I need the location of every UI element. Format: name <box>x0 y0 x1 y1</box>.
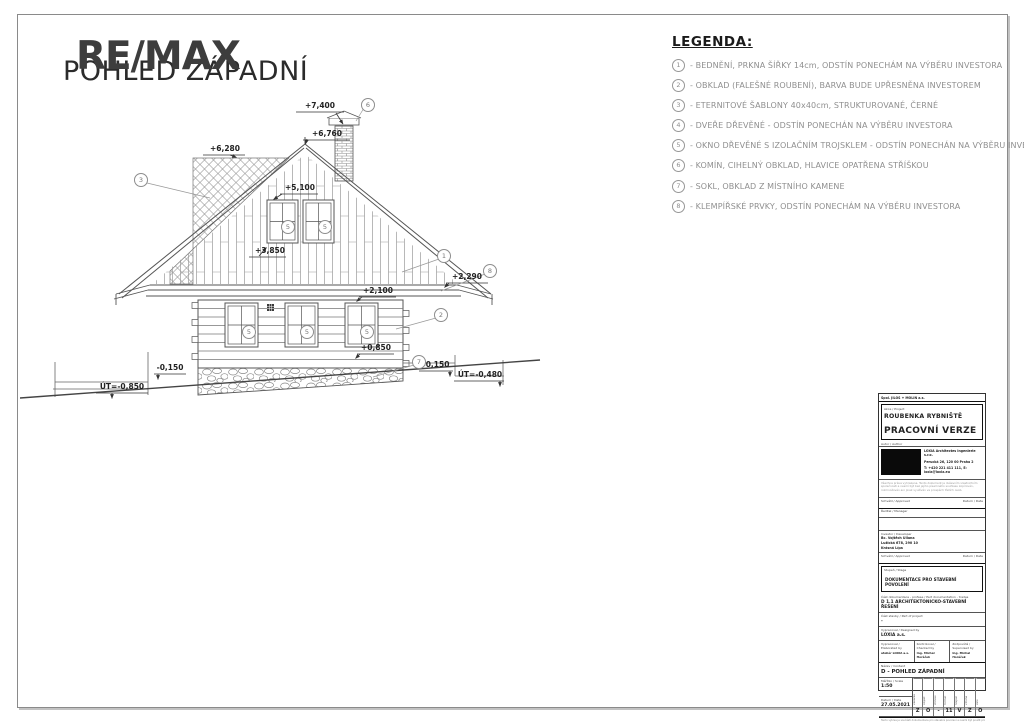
dim-label: +7,400 <box>296 101 344 110</box>
legend-item-text: - BEDNĚNÍ, PRKNA ŠÍŘKY 14cm, ODSTÍN PONE… <box>690 61 1002 70</box>
legend-item-text: - OKNO DŘEVĚNÉ S IZOLAČNÍM TROJSKLEM - O… <box>690 141 1024 150</box>
code-cell: Z <box>913 706 922 716</box>
dim-label: +2,100 <box>358 286 398 295</box>
stage-value: DOKUMENTACE PRO STAVEBNÍ POVOLENÍ <box>882 572 982 587</box>
chimney <box>327 111 361 181</box>
checked-value: Ing. Michal Horáček <box>915 650 950 660</box>
code-cell: V <box>955 706 964 716</box>
spacer <box>879 518 985 531</box>
titleblock-company: Spol. JILOS + MOLIN a.s. <box>879 394 985 402</box>
legend-item-text: - KLEMPÍŘSKÉ PRVKY, ODSTÍN PONECHÁM NA V… <box>690 202 960 211</box>
wall-vent <box>267 304 274 311</box>
marker-7: 7 <box>412 355 426 369</box>
investor-block: Investor / Developer Bc. Vojtěch Uliana … <box>879 531 985 553</box>
elaborated-label: Vypracoval / Elaborated by <box>879 641 914 650</box>
date-label: Datum / Date <box>961 553 985 558</box>
marker-2: 2 <box>434 308 448 322</box>
firm-address: Perucká 26, 120 00 Praha 2 <box>924 460 983 464</box>
legend-item: 7 - SOKL, OBKLAD Z MÍSTNÍHO KAMENE <box>672 180 1017 192</box>
scale-value: 1:50 <box>879 683 912 690</box>
marker-6: 6 <box>361 98 375 112</box>
approved-row-2: Schválil / Approved Datum / Date <box>879 553 985 564</box>
legend-number-badge: 8 <box>672 200 685 213</box>
title-block: Spol. JILOS + MOLIN a.s. Akce / Project … <box>878 393 986 691</box>
legend-item: 1 - BEDNĚNÍ, PRKNA ŠÍŘKY 14cm, ODSTÍN PO… <box>672 59 1017 71</box>
dim-label: ÚT=-0,480 <box>452 370 508 379</box>
legend-number-badge: 5 <box>672 139 685 152</box>
docpart-row: Část dokumentace - profese / Part docume… <box>879 594 985 613</box>
legend-item: 4 - DVEŘE DŘEVĚNÉ - ODSTÍN PONECHÁN NA V… <box>672 120 1017 132</box>
marker-5: 5 <box>318 220 332 234</box>
marker-3: 3 <box>134 173 148 187</box>
legend-item: 2 - OBKLAD (FALEŠNÉ ROUBENÍ), BARVA BUDE… <box>672 79 1017 91</box>
code-cell: O <box>923 706 932 716</box>
code-col-label: Změna <box>965 678 974 706</box>
marker-5: 5 <box>281 220 295 234</box>
scale-code-grid: Měřítko / Scale 1:50 Datum / Date 27.05.… <box>879 678 985 717</box>
date-label: Datum / Date <box>961 498 985 503</box>
buildpart-row: Část stavby / Part of project - <box>879 613 985 627</box>
legend-number-badge: 3 <box>672 99 685 112</box>
legend-item: 8 - KLEMPÍŘSKÉ PRVKY, ODSTÍN PONECHÁM NA… <box>672 200 1017 212</box>
legend-number-badge: 7 <box>672 180 685 193</box>
code-col-label: Formát <box>944 678 953 706</box>
code-col-label: Paré <box>976 678 985 706</box>
code-cell: 11 <box>944 706 953 716</box>
investor-address1: Lužická 678, 290 10 <box>879 541 985 545</box>
firm-contact: T: +420 221 411 111, E: loxia@loxia.eu <box>924 466 983 474</box>
project-version: PRACOVNÍ VERZE <box>882 420 982 436</box>
dim-label: +3,850 <box>250 246 290 255</box>
legend-item: 6 - KOMÍN, CIHELNÝ OBKLAD, HLAVICE OPATŘ… <box>672 160 1017 172</box>
legend-item-text: - DVEŘE DŘEVĚNÉ - ODSTÍN PONECHÁN NA VÝB… <box>690 121 953 130</box>
responsibility-columns: Vypracoval / Elaborated by ateliér LOXIA… <box>879 641 985 663</box>
dim-label: +2,290 <box>445 272 489 281</box>
project-name: ROUBENKA RYBNIŠTĚ <box>882 411 982 420</box>
code-cell: - <box>934 706 943 716</box>
legend: LEGENDA: 1 - BEDNĚNÍ, PRKNA ŠÍŘKY 14cm, … <box>672 34 1017 221</box>
date-value: 27.05.2021 <box>879 702 912 709</box>
marker-5: 5 <box>242 325 256 339</box>
investor-name: Bc. Vojtěch Uliana <box>879 536 985 540</box>
legend-item-text: - KOMÍN, CIHELNÝ OBKLAD, HLAVICE OPATŘEN… <box>690 161 929 170</box>
remax-watermark: RE/MAX <box>76 34 240 79</box>
code-col-label: Zakázka <box>913 678 922 706</box>
manager-label: Ředitel / Manager <box>879 508 909 513</box>
dim-label: +0,850 <box>356 343 396 352</box>
firm-logo <box>881 449 921 475</box>
content-row: Název / Content D - POHLED ZÁPADNÍ <box>879 663 985 678</box>
legend-number-badge: 4 <box>672 119 685 132</box>
dim-label: +6,760 <box>303 129 351 138</box>
checked-label: Kontroloval / Checked by <box>915 641 950 650</box>
code-col-label: Objekt <box>923 678 932 706</box>
firm-name: LOXIA Architectes Ingenierie s.r.o. <box>924 449 983 457</box>
elevation-drawing <box>20 88 560 418</box>
marker-8: 8 <box>483 264 497 278</box>
legend-item-text: - OBKLAD (FALEŠNÉ ROUBENÍ), BARVA BUDE U… <box>690 81 981 90</box>
legend-title: LEGENDA: <box>672 34 1017 50</box>
code-col-label: Stupeň <box>955 678 964 706</box>
supervised-label: Zodpovídá / Supervised by <box>950 641 985 650</box>
disclaimer-text: Všechna práva vyhrazena. Tento dokument … <box>879 480 985 498</box>
marker-1: 1 <box>437 249 451 263</box>
stage-box: Stupeň / Stage DOKUMENTACE PRO STAVEBNÍ … <box>881 566 983 592</box>
investor-address2: Krásná Lípa <box>879 546 985 550</box>
elaborated-value: ateliér LOXIA a.s. <box>879 650 914 656</box>
firm-block: LOXIA Architectes Ingenierie s.r.o. Peru… <box>879 447 985 480</box>
author-label: Autor / Author <box>879 441 904 446</box>
supervised-value: Ing. Michal Horáček <box>950 650 985 660</box>
legend-item: 5 - OKNO DŘEVĚNÉ S IZOLAČNÍM TROJSKLEM -… <box>672 140 1017 152</box>
content-value: D - POHLED ZÁPADNÍ <box>879 668 985 677</box>
legend-item-text: - SOKL, OBKLAD Z MÍSTNÍHO KAMENE <box>690 182 845 191</box>
dim-label: +5,100 <box>280 183 320 192</box>
marker-5: 5 <box>360 325 374 339</box>
buildpart-value: - <box>879 618 985 626</box>
designed-row: Vypracoval / Designed by LOXIA a.s. <box>879 627 985 641</box>
docpart-value: D 1.1 ARCHITEKTONICKO-STAVEBNÍ ŘEŠENÍ <box>879 599 985 612</box>
dim-label: +6,280 <box>203 144 247 153</box>
code-cell: Z <box>965 706 974 716</box>
designed-value: LOXIA a.s. <box>879 632 985 640</box>
legend-item: 3 - ETERNITOVÉ ŠABLONY 40x40cm, STRUKTUR… <box>672 99 1017 111</box>
dim-label: -0,150 <box>152 363 188 372</box>
titleblock-footer: Tento výkres je součástí dokumentace pro… <box>879 717 985 723</box>
approved-label: Schválil / Approved <box>879 553 912 558</box>
code-col-label: Profese <box>934 678 943 706</box>
legend-number-badge: 1 <box>672 59 685 72</box>
project-box: Akce / Project ROUBENKA RYBNIŠTĚ PRACOVN… <box>881 404 983 440</box>
code-cell: O <box>976 706 985 716</box>
legend-number-badge: 2 <box>672 79 685 92</box>
dim-label: ÚT=-0,850 <box>94 382 150 391</box>
legend-item-text: - ETERNITOVÉ ŠABLONY 40x40cm, STRUKTUROV… <box>690 101 938 110</box>
approved-row: Schválil / Approved Datum / Date <box>879 498 985 509</box>
marker-5: 5 <box>300 325 314 339</box>
approved-label: Schválil / Approved <box>879 498 912 503</box>
legend-number-badge: 6 <box>672 159 685 172</box>
